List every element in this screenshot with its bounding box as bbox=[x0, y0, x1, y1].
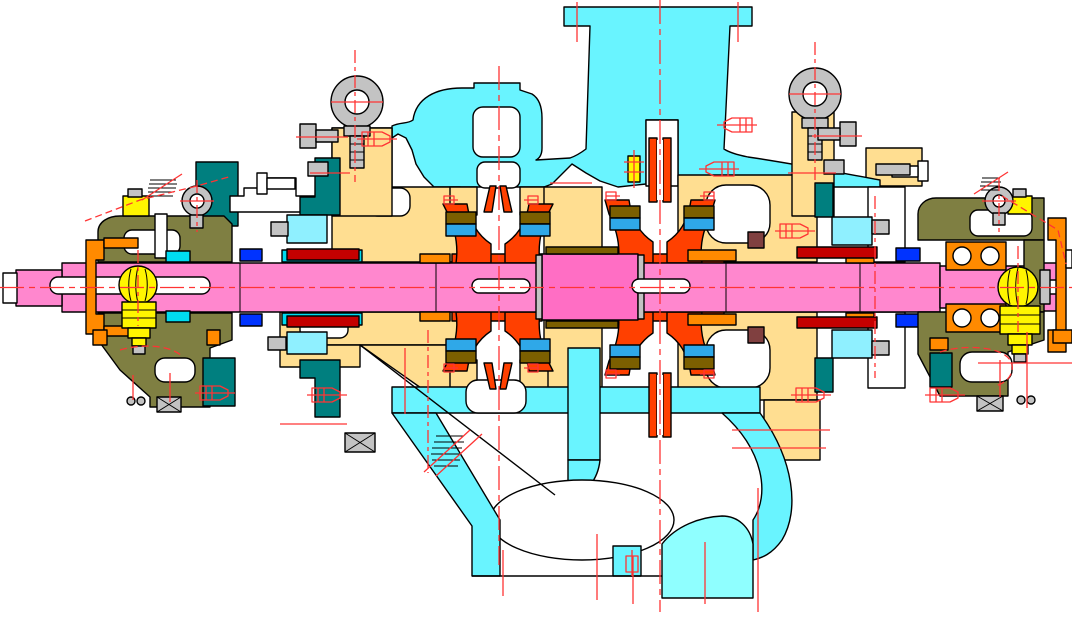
pad-foot bbox=[127, 397, 135, 405]
long-stud bbox=[876, 164, 910, 175]
seal-rings-right-top bbox=[797, 247, 877, 258]
hex-bolt-head bbox=[840, 122, 856, 146]
shaft-sleeve bbox=[420, 254, 450, 263]
retainer-step bbox=[1008, 334, 1032, 345]
cover-tab bbox=[930, 338, 948, 350]
cover-detail bbox=[1066, 250, 1072, 268]
volute-splitter-wall bbox=[568, 348, 600, 460]
wear-ring bbox=[610, 345, 640, 357]
oiler-fitting bbox=[123, 196, 149, 216]
bearing-ball bbox=[953, 247, 971, 265]
seal-bolt-blue bbox=[896, 314, 920, 327]
oiler-cap bbox=[128, 189, 142, 197]
hex-bolt-shank bbox=[818, 128, 840, 140]
seal-bolt-blue bbox=[240, 314, 262, 326]
hub-knurl-top bbox=[546, 247, 618, 254]
drawing-canvas bbox=[0, 0, 1072, 622]
bracket-block-teal bbox=[930, 353, 952, 387]
wear-ring-seat bbox=[446, 212, 476, 224]
seal-bolt-blue bbox=[240, 249, 262, 261]
hex-bolt-head bbox=[300, 124, 316, 148]
pad-foot bbox=[1027, 396, 1035, 404]
impeller2-stem-right bbox=[663, 138, 671, 202]
gland-bolt bbox=[271, 222, 288, 236]
shaft-keyway-stage2 bbox=[632, 279, 690, 293]
cover-tab bbox=[104, 238, 138, 248]
labyrinth-seal bbox=[166, 311, 190, 322]
cap-stud bbox=[155, 214, 167, 258]
wear-ring bbox=[520, 224, 550, 236]
wear-ring-seat bbox=[520, 351, 550, 363]
bearing-retainer-right bbox=[1000, 306, 1040, 334]
wear-ring bbox=[610, 218, 640, 230]
wear-ring-seat bbox=[520, 212, 550, 224]
wear-ring-seat bbox=[446, 351, 476, 363]
bearing-ball bbox=[953, 309, 971, 327]
balance-bushing-top bbox=[688, 250, 736, 261]
seal-gland-right-top bbox=[832, 217, 872, 245]
throttle-bush-btm bbox=[748, 327, 764, 343]
wear-ring-seat bbox=[610, 206, 640, 218]
retainer-step2 bbox=[1012, 345, 1028, 354]
impeller2-stem-left bbox=[649, 138, 657, 202]
pad-foot bbox=[137, 397, 145, 405]
seal-bolt-blue bbox=[896, 248, 920, 261]
bearing-ball bbox=[981, 247, 999, 265]
impeller2-stem-left-btm bbox=[649, 373, 657, 437]
shaft-sleeve bbox=[420, 312, 450, 321]
hex-nut bbox=[824, 160, 844, 174]
bracket-hole bbox=[155, 358, 195, 382]
stud-shank bbox=[267, 178, 295, 189]
seal-rings-left-top bbox=[287, 249, 359, 260]
cover-flange bbox=[93, 330, 107, 345]
gland-bolt bbox=[268, 337, 286, 350]
seal-gland-right-btm bbox=[832, 330, 872, 358]
wear-ring bbox=[446, 339, 476, 351]
wear-ring bbox=[684, 345, 714, 357]
gland-flange bbox=[207, 330, 220, 345]
shaft-keyway-stage1 bbox=[472, 279, 530, 293]
bearing-ball bbox=[981, 309, 999, 327]
oiler-cap bbox=[1013, 189, 1026, 197]
hub-knurl-btm bbox=[546, 321, 618, 328]
retainer-nut bbox=[1014, 354, 1026, 362]
seal-gland-left-btm bbox=[287, 332, 327, 354]
balance-bushing-btm bbox=[688, 314, 736, 325]
seal-rings-left-btm bbox=[287, 316, 359, 327]
pump-cross-section-drawing bbox=[0, 0, 1072, 622]
hex-bolt-shank bbox=[316, 130, 338, 142]
bracket-block-teal bbox=[203, 358, 235, 406]
wear-ring bbox=[684, 218, 714, 230]
bracket-hole bbox=[960, 352, 1012, 382]
labyrinth-seal bbox=[166, 251, 190, 262]
crossover-cavity bbox=[473, 107, 520, 157]
gland-plate-right bbox=[815, 183, 833, 217]
cover-flange bbox=[1053, 330, 1072, 343]
throttle-bush-top bbox=[748, 232, 764, 248]
seal-gland-left-top bbox=[287, 215, 327, 243]
gland-plate-right-btm bbox=[815, 358, 833, 392]
retainer-step2 bbox=[132, 338, 146, 346]
stud-head bbox=[257, 173, 267, 194]
impeller2-stem-right-btm bbox=[663, 373, 671, 437]
wear-ring-seat bbox=[684, 357, 714, 369]
pad-foot bbox=[1017, 396, 1025, 404]
bearing-retainer-left bbox=[122, 302, 156, 328]
retainer-step bbox=[128, 328, 150, 338]
wear-ring bbox=[520, 339, 550, 351]
eyebolt-base bbox=[344, 126, 370, 136]
wear-ring-seat bbox=[684, 206, 714, 218]
hex-nut bbox=[308, 162, 328, 176]
stud-head bbox=[918, 161, 928, 181]
volute-channel bbox=[490, 480, 674, 560]
seal-rings-right-btm bbox=[797, 317, 877, 328]
wear-ring-seat bbox=[610, 357, 640, 369]
wear-ring bbox=[446, 224, 476, 236]
